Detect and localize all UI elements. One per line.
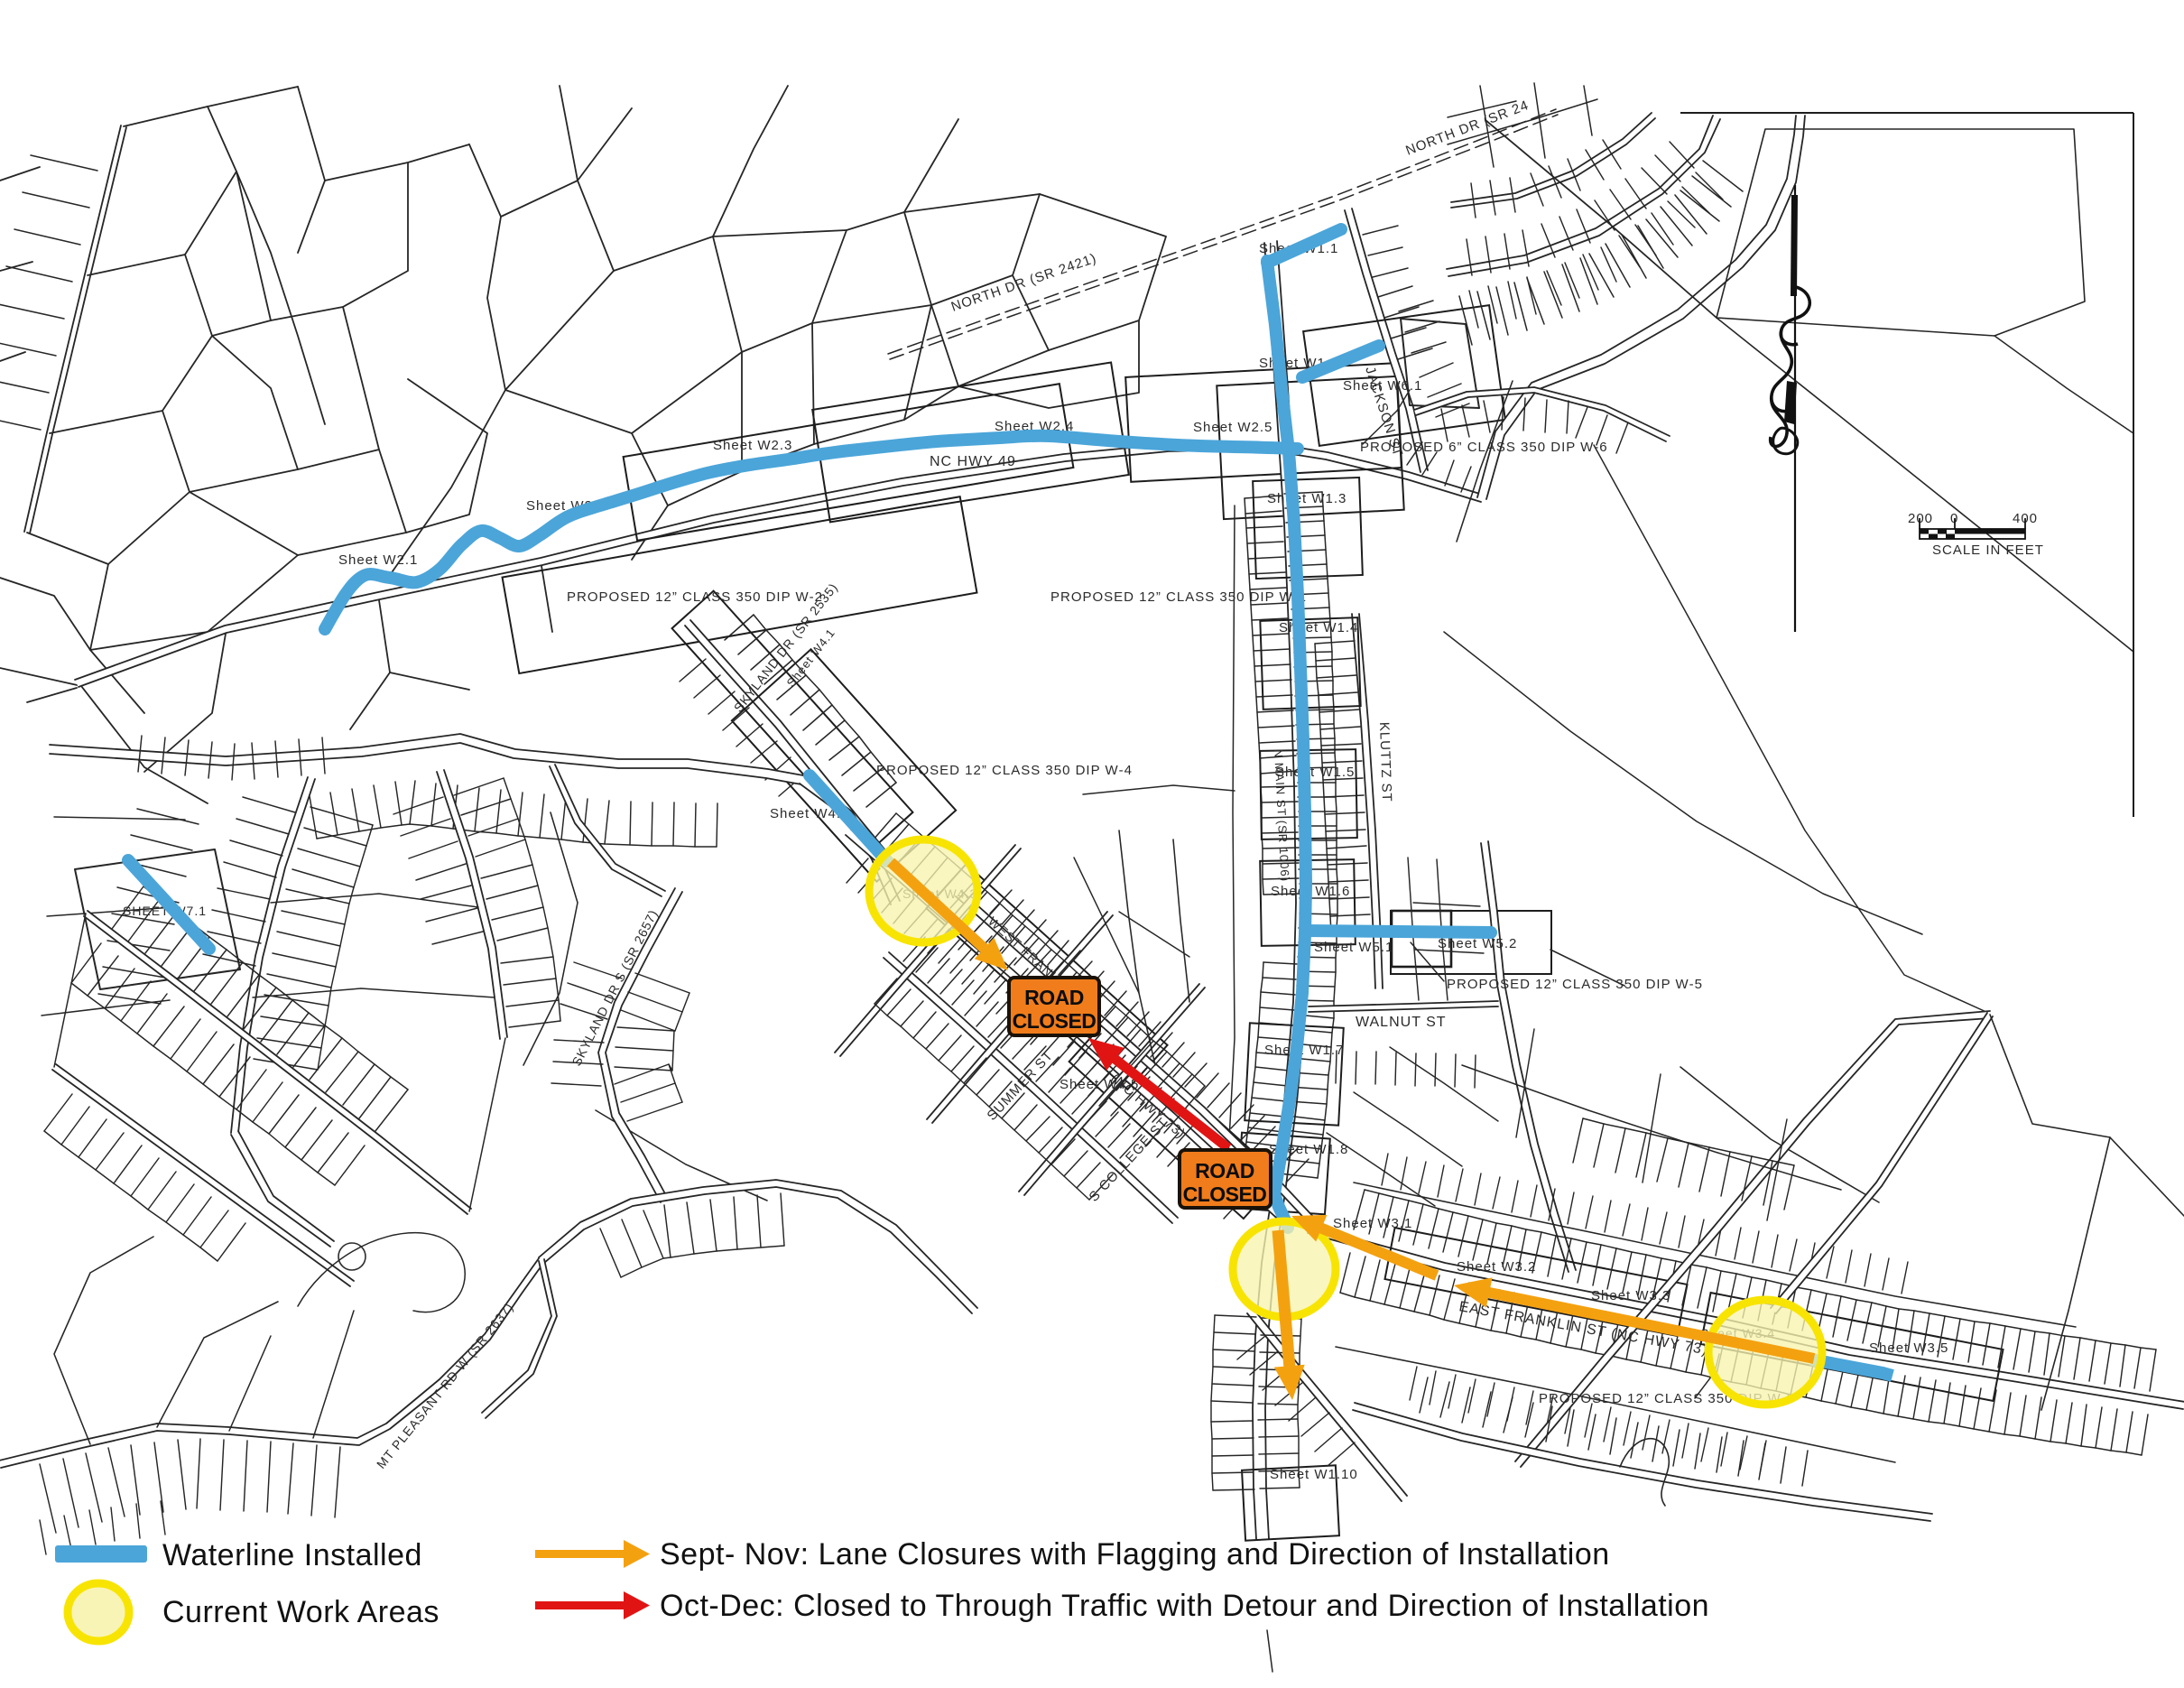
svg-text:Sept- Nov: Lane Closures with: Sept- Nov: Lane Closures with Flagging a… <box>660 1537 1610 1572</box>
svg-text:Sheet W3.2: Sheet W3.2 <box>1457 1259 1536 1275</box>
svg-text:PROPOSED 12” CLASS 350 DIP W‑4: PROPOSED 12” CLASS 350 DIP W‑4 <box>876 763 1133 778</box>
svg-text:KLUTTZ ST: KLUTTZ ST <box>1376 722 1394 803</box>
svg-text:Sheet W2.1: Sheet W2.1 <box>338 552 418 568</box>
svg-text:Sheet W5.1: Sheet W5.1 <box>1314 940 1393 955</box>
svg-text:PROPOSED 12” CLASS 350 DIP W‑5: PROPOSED 12” CLASS 350 DIP W‑5 <box>1447 977 1703 992</box>
svg-text:Sheet W2.5: Sheet W2.5 <box>1193 420 1272 435</box>
svg-text:NC HWY 49: NC HWY 49 <box>930 454 1016 469</box>
svg-text:Sheet W3.1: Sheet W3.1 <box>1333 1216 1412 1231</box>
svg-text:Waterline Installed: Waterline Installed <box>162 1538 422 1572</box>
svg-text:PROPOSED 12” CLASS 350 DIP W‑2: PROPOSED 12” CLASS 350 DIP W‑2 <box>567 589 823 605</box>
svg-text:200: 200 <box>1908 511 1933 526</box>
svg-text:Sheet W1.4: Sheet W1.4 <box>1279 620 1358 635</box>
svg-text:ROAD: ROAD <box>1195 1159 1254 1183</box>
svg-text:Sheet W1.3: Sheet W1.3 <box>1267 491 1346 506</box>
svg-text:ROAD: ROAD <box>1024 986 1084 1009</box>
svg-text:WALNUT ST: WALNUT ST <box>1356 1015 1447 1030</box>
svg-text:CLOSED: CLOSED <box>1183 1183 1267 1206</box>
svg-text:Sheet W1.10: Sheet W1.10 <box>1270 1467 1358 1482</box>
svg-text:Current Work Areas: Current Work Areas <box>162 1595 440 1629</box>
svg-text:Sheet W2.3: Sheet W2.3 <box>713 438 792 453</box>
svg-text:PROPOSED 12” CLASS 350 DIP W‑1: PROPOSED 12” CLASS 350 DIP W‑1 <box>1050 589 1307 605</box>
svg-text:Oct-Dec: Closed to Through Tr: Oct-Dec: Closed to Through Traffic with … <box>660 1589 1709 1623</box>
svg-text:Sheet W1.7: Sheet W1.7 <box>1264 1043 1344 1058</box>
svg-text:SCALE IN FEET: SCALE IN FEET <box>1932 543 2044 558</box>
svg-text:Sheet W3.5: Sheet W3.5 <box>1869 1340 1948 1356</box>
svg-text:CLOSED: CLOSED <box>1013 1009 1097 1033</box>
svg-text:Sheet W3.3: Sheet W3.3 <box>1591 1288 1670 1303</box>
